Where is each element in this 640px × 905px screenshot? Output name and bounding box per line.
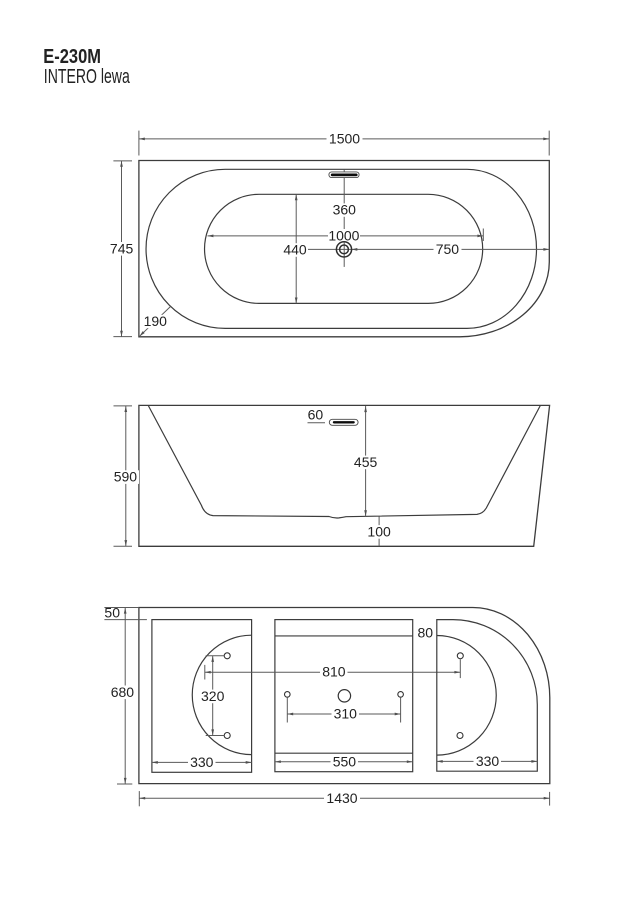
svg-text:INTERO lewa: INTERO lewa: [44, 64, 130, 87]
svg-text:1430: 1430: [326, 790, 357, 806]
svg-text:680: 680: [111, 684, 135, 700]
svg-text:810: 810: [322, 664, 346, 680]
svg-text:550: 550: [333, 753, 357, 769]
svg-text:80: 80: [418, 624, 434, 640]
svg-text:100: 100: [367, 523, 391, 539]
svg-text:50: 50: [104, 605, 120, 621]
svg-text:745: 745: [110, 240, 134, 256]
svg-text:590: 590: [114, 469, 138, 485]
svg-text:320: 320: [201, 688, 225, 704]
svg-text:60: 60: [308, 407, 324, 423]
svg-text:455: 455: [354, 454, 378, 470]
svg-text:440: 440: [283, 242, 307, 258]
svg-text:360: 360: [333, 202, 357, 218]
svg-text:750: 750: [436, 241, 460, 257]
svg-text:1500: 1500: [329, 131, 360, 147]
svg-text:190: 190: [144, 313, 168, 329]
svg-text:330: 330: [190, 754, 214, 770]
svg-text:310: 310: [334, 706, 358, 722]
svg-text:330: 330: [476, 753, 500, 769]
